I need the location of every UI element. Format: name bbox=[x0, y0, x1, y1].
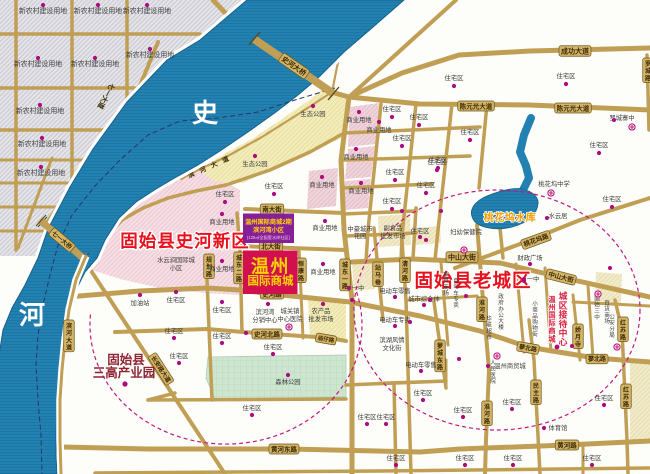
svg-text:体育馆: 体育馆 bbox=[549, 423, 568, 432]
svg-text:人民医院: 人民医院 bbox=[490, 360, 496, 385]
svg-text:小商品购物街: 小商品购物街 bbox=[532, 300, 538, 339]
svg-text:淮河路: 淮河路 bbox=[484, 403, 491, 425]
svg-text:电动车专卖: 电动车专卖 bbox=[379, 315, 410, 324]
svg-text:水云居: 水云居 bbox=[549, 211, 568, 220]
svg-text:森林公园: 森林公园 bbox=[275, 377, 300, 386]
svg-text:温州国际商城2期: 温州国际商城2期 bbox=[245, 218, 292, 226]
svg-text:住宅区: 住宅区 bbox=[411, 226, 430, 235]
svg-text:中心医院: 中心医院 bbox=[277, 314, 303, 323]
svg-text:商业用地: 商业用地 bbox=[343, 152, 369, 161]
svg-text:民主路: 民主路 bbox=[533, 382, 540, 404]
svg-text:固始县史河新区: 固始县史河新区 bbox=[120, 231, 250, 251]
svg-text:中山大街: 中山大街 bbox=[448, 253, 476, 262]
svg-text:固始县老城区: 固始县老城区 bbox=[414, 270, 531, 291]
svg-text:商业用地: 商业用地 bbox=[348, 186, 374, 195]
svg-text:城关镇: 城关镇 bbox=[281, 306, 301, 315]
svg-text:电动车零售: 电动车零售 bbox=[405, 360, 436, 369]
svg-text:桃花坞水库: 桃花坞水库 bbox=[484, 211, 537, 224]
svg-text:温州国际商城: 温州国际商城 bbox=[547, 295, 556, 344]
svg-text:电动车零售: 电动车零售 bbox=[379, 286, 410, 295]
svg-text:商业用地: 商业用地 bbox=[310, 267, 336, 276]
svg-text:史: 史 bbox=[192, 98, 219, 128]
svg-text:批发市场: 批发市场 bbox=[308, 314, 333, 323]
svg-text:住宅区: 住宅区 bbox=[595, 393, 614, 402]
svg-text:城市综合体: 城市综合体 bbox=[408, 294, 440, 303]
svg-text:中豪城市: 中豪城市 bbox=[347, 224, 372, 233]
svg-text:滨河大道: 滨河大道 bbox=[66, 322, 72, 352]
svg-text:淮河路: 淮河路 bbox=[479, 299, 486, 321]
svg-text:文化街: 文化街 bbox=[383, 343, 403, 352]
svg-text:住宅区: 住宅区 bbox=[264, 342, 283, 351]
svg-text:生态公园: 生态公园 bbox=[242, 159, 267, 168]
svg-text:住宅区: 住宅区 bbox=[557, 71, 576, 80]
svg-text:住宅区: 住宅区 bbox=[358, 412, 377, 421]
svg-text:滨湖风情: 滨湖风情 bbox=[379, 335, 405, 344]
svg-text:住宅区: 住宅区 bbox=[377, 412, 396, 421]
svg-text:新农村建设用地: 新农村建设用地 bbox=[18, 139, 66, 148]
svg-text:商业用地: 商业用地 bbox=[209, 217, 235, 226]
svg-text:住宅区: 住宅区 bbox=[165, 326, 184, 335]
svg-text:水云涧国际城: 水云涧国际城 bbox=[157, 255, 195, 264]
svg-text:农产品: 农产品 bbox=[312, 306, 331, 315]
svg-text:政府办公大楼: 政府办公大楼 bbox=[498, 293, 504, 332]
svg-text:陈元光大道: 陈元光大道 bbox=[460, 101, 493, 110]
svg-text:住宅区: 住宅区 bbox=[503, 397, 522, 406]
svg-text:住宅区: 住宅区 bbox=[603, 194, 622, 203]
svg-text:住宅区: 住宅区 bbox=[590, 140, 609, 149]
svg-text:住宅区: 住宅区 bbox=[583, 453, 602, 462]
svg-text:住宅区: 住宅区 bbox=[414, 388, 433, 397]
svg-text:娇月寺: 娇月寺 bbox=[574, 326, 582, 348]
svg-text:新农村建设用地: 新农村建设用地 bbox=[123, 6, 171, 15]
svg-text:城东一路: 城东一路 bbox=[342, 261, 349, 291]
svg-text:城区接待中心: 城区接待中心 bbox=[559, 290, 568, 347]
svg-text:一中: 一中 bbox=[352, 283, 365, 292]
svg-text:河: 河 bbox=[19, 300, 45, 330]
svg-text:萝城东路: 萝城东路 bbox=[437, 342, 444, 372]
svg-text:温州商贸城: 温州商贸城 bbox=[494, 361, 526, 370]
svg-text:新农村建设用地: 新农村建设用地 bbox=[71, 59, 119, 68]
svg-text:蓼北路: 蓼北路 bbox=[587, 355, 607, 363]
svg-text:商业用地: 商业用地 bbox=[312, 223, 338, 232]
svg-text:商业用地: 商业用地 bbox=[209, 264, 235, 273]
svg-text:固始县: 固始县 bbox=[107, 352, 145, 367]
svg-text:住宅区: 住宅区 bbox=[213, 331, 232, 340]
svg-text:住宅区: 住宅区 bbox=[265, 181, 284, 190]
svg-text:住宅区: 住宅区 bbox=[386, 167, 405, 176]
svg-text:商业用地: 商业用地 bbox=[346, 115, 372, 124]
svg-text:新农村建设用地: 新农村建设用地 bbox=[19, 6, 67, 15]
svg-text:电动车专卖: 电动车专卖 bbox=[453, 277, 459, 309]
svg-text:生态公园: 生态公园 bbox=[300, 109, 325, 118]
svg-text:住宅区: 住宅区 bbox=[213, 305, 232, 314]
svg-text:华联超市: 华联超市 bbox=[486, 315, 492, 341]
svg-text:住宅区: 住宅区 bbox=[167, 295, 186, 304]
svg-text:(125㎡全配套水岸社区): (125㎡全配套水岸社区) bbox=[247, 234, 291, 241]
svg-text:史河北路: 史河北路 bbox=[254, 329, 281, 338]
svg-text:住宅区: 住宅区 bbox=[456, 453, 475, 462]
svg-text:住宅区: 住宅区 bbox=[383, 196, 402, 205]
svg-text:住宅区: 住宅区 bbox=[461, 127, 480, 136]
svg-text:花园: 花园 bbox=[354, 231, 367, 240]
svg-text:新农村建设用地: 新农村建设用地 bbox=[74, 6, 122, 15]
svg-text:住宅区: 住宅区 bbox=[170, 351, 189, 360]
svg-text:一中: 一中 bbox=[527, 274, 540, 283]
svg-text:住宅区: 住宅区 bbox=[243, 403, 262, 412]
svg-text:住宅区: 住宅区 bbox=[454, 405, 473, 414]
svg-text:滨河湾小区: 滨河湾小区 bbox=[253, 226, 285, 234]
svg-text:住宅区: 住宅区 bbox=[383, 104, 402, 113]
svg-text:住宅区: 住宅区 bbox=[393, 133, 412, 142]
svg-text:住宅区: 住宅区 bbox=[504, 453, 523, 462]
svg-text:小区: 小区 bbox=[170, 263, 183, 272]
svg-text:国际商城: 国际商城 bbox=[248, 274, 294, 288]
svg-text:新农村建设用地: 新农村建设用地 bbox=[16, 106, 64, 115]
svg-text:家具商场: 家具商场 bbox=[443, 271, 449, 297]
svg-text:固始三中: 固始三中 bbox=[594, 296, 600, 321]
svg-text:住宅区: 住宅区 bbox=[428, 157, 447, 166]
svg-text:站马巷: 站马巷 bbox=[374, 264, 381, 286]
svg-text:桃花坞中学: 桃花坞中学 bbox=[538, 179, 569, 188]
svg-text:商业用地: 商业用地 bbox=[309, 180, 335, 189]
svg-text:三高产业园: 三高产业园 bbox=[93, 365, 156, 380]
svg-text:公安分局: 公安分局 bbox=[609, 315, 615, 339]
svg-text:批发市场: 批发市场 bbox=[380, 231, 405, 240]
svg-text:滨河湾: 滨河湾 bbox=[256, 307, 276, 316]
svg-text:商业用地: 商业用地 bbox=[366, 125, 392, 134]
svg-text:黄河路: 黄河路 bbox=[557, 440, 577, 449]
svg-text:住宅区: 住宅区 bbox=[445, 73, 464, 82]
svg-text:成功大道: 成功大道 bbox=[561, 47, 589, 56]
svg-text:住宅区: 住宅区 bbox=[216, 189, 235, 198]
svg-text:黄河东路: 黄河东路 bbox=[271, 444, 298, 453]
svg-text:财政广场: 财政广场 bbox=[517, 253, 542, 262]
svg-text:加油站: 加油站 bbox=[131, 298, 151, 307]
svg-text:妇幼保健院: 妇幼保健院 bbox=[450, 227, 482, 236]
svg-text:城东二路: 城东二路 bbox=[236, 254, 243, 284]
svg-text:红苏路: 红苏路 bbox=[623, 386, 630, 408]
svg-text:新农村建设用地: 新农村建设用地 bbox=[14, 59, 62, 68]
svg-text:新农村建设用地: 新农村建设用地 bbox=[17, 168, 65, 177]
svg-text:副食品: 副食品 bbox=[384, 223, 403, 232]
svg-text:住宅区: 住宅区 bbox=[410, 112, 429, 121]
svg-text:温州: 温州 bbox=[251, 257, 290, 277]
svg-text:陈元光大道: 陈元光大道 bbox=[557, 103, 590, 112]
svg-text:新农村建设用地: 新农村建设用地 bbox=[126, 50, 174, 59]
svg-text:住宅区: 住宅区 bbox=[387, 453, 406, 462]
svg-text:罗城路: 罗城路 bbox=[645, 60, 650, 82]
svg-text:清河路: 清河路 bbox=[402, 260, 409, 282]
svg-text:住宅区: 住宅区 bbox=[417, 180, 436, 189]
svg-text:红苏路: 红苏路 bbox=[620, 319, 627, 341]
svg-text:南大街: 南大街 bbox=[262, 204, 282, 213]
svg-text:分销中心: 分销中心 bbox=[252, 315, 278, 324]
svg-text:恒康路: 恒康路 bbox=[297, 260, 305, 282]
